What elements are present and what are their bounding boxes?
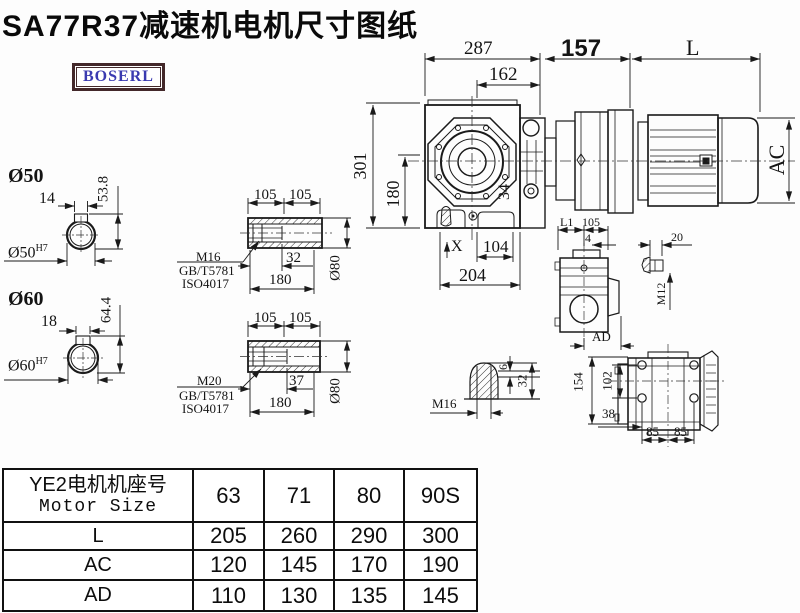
dim-foot-span: 204 (459, 266, 486, 284)
shaft-d60-label: Ø60 (8, 289, 44, 309)
plug-tip-length: 6 (497, 364, 509, 370)
hs20-bolt-depth: 37 (289, 374, 304, 389)
hs20-outer-dia: Ø80 (329, 378, 344, 404)
hs16-dim-105a: 105 (254, 188, 277, 203)
cell-ad-90s: 145 (404, 580, 477, 611)
brand-logo-text: BOSERL (76, 67, 161, 87)
cell-ad-80: 135 (334, 580, 404, 611)
hs20-dim-105b: 105 (289, 311, 312, 326)
cell-ad-71: 130 (264, 580, 334, 611)
row-label-ad: AD (3, 580, 193, 611)
dim-adapter-length: 157 (561, 37, 601, 61)
oil-plug (441, 207, 451, 227)
bolt-thread: M12 (655, 283, 667, 306)
dim-motor-diameter: AC (766, 145, 788, 176)
d60-key-width: 18 (41, 314, 57, 330)
table-col-90s: 90S (404, 469, 477, 522)
rv-bolt-pitch-a: 85 (646, 425, 659, 438)
cell-l-90s: 300 (404, 522, 477, 550)
table-col-80: 80 (334, 469, 404, 522)
plug-thread: M16 (432, 397, 457, 410)
cell-ac-63: 120 (193, 550, 264, 580)
marker-x: X (451, 239, 463, 255)
d50-key-width: 14 (39, 191, 55, 207)
shaft-d50-label: Ø50 (8, 166, 44, 186)
hs16-bolt-depth: 32 (286, 251, 301, 266)
table-col-63: 63 (193, 469, 264, 522)
cell-l-71: 260 (264, 522, 334, 550)
page-title: SA77R37减速机电机尺寸图纸 (2, 1, 418, 45)
d60-key-height: 64.4 (100, 297, 115, 323)
hs16-thread: M16 (196, 250, 221, 263)
row-label-ac: AC (3, 550, 193, 580)
cell-l-63: 205 (193, 522, 264, 550)
dim-height-axis: 180 (384, 181, 402, 208)
hs20-thread: M20 (197, 374, 222, 387)
hs20-total-length: 180 (269, 396, 292, 411)
dim-width-total: 287 (464, 39, 493, 58)
sv-dim-ad: AD (592, 330, 611, 343)
cell-ac-71: 145 (264, 550, 334, 580)
motor-size-table: YE2电机机座号 Motor Size 63 71 80 90S L 205 2… (2, 468, 478, 612)
motor-adapter (545, 110, 648, 213)
brand-logo: BOSERL (72, 63, 165, 91)
sv-dim-4: 4 (585, 232, 591, 244)
rv-offset: 38 (602, 407, 615, 420)
sv-dim-105: 105 (582, 216, 600, 228)
gearbox-front-view (425, 100, 545, 228)
sv-dim-l1: L1 (560, 216, 573, 228)
table-col-71: 71 (264, 469, 334, 522)
hs20-dim-105a: 105 (254, 311, 277, 326)
plug-length: 32 (516, 375, 529, 388)
cell-l-80: 290 (334, 522, 404, 550)
drawing-sheet: SA77R37减速机电机尺寸图纸 BOSERL 287 162 157 L 30… (0, 0, 800, 613)
motor-side-view (648, 115, 758, 206)
d50-key-height: 53.8 (97, 176, 112, 202)
main-dimensions (366, 53, 795, 290)
rv-bolt-pitch-b: 85 (674, 425, 687, 438)
table-row: L 205 260 290 300 (3, 522, 477, 550)
cell-ac-80: 170 (334, 550, 404, 580)
hs16-standard-2: ISO4017 (182, 277, 229, 290)
dim-34: 34 (497, 184, 513, 200)
table-header-motor-size: YE2电机机座号 Motor Size (3, 469, 193, 522)
dim-width-flange: 162 (489, 65, 518, 84)
dim-foot-offset: 104 (483, 238, 509, 255)
rv-bolt-spacing-v: 102 (601, 371, 614, 391)
cell-ac-90s: 190 (404, 550, 477, 580)
dim-motor-length: L (686, 37, 699, 59)
d50-bore-label: Ø50H7 (8, 244, 48, 261)
cell-ad-63: 110 (193, 580, 264, 611)
dim-height-total: 301 (351, 153, 369, 180)
rv-height-total: 154 (572, 372, 585, 392)
table-row: AD 110 130 135 145 (3, 580, 477, 611)
table-row: AC 120 145 170 190 (3, 550, 477, 580)
d60-bore-label: Ø60H7 (8, 357, 48, 374)
bolt-length: 20 (671, 231, 683, 243)
row-label-l: L (3, 522, 193, 550)
hs16-outer-dia: Ø80 (329, 255, 344, 281)
hs20-standard-2: ISO4017 (182, 402, 229, 415)
hs16-dim-105b: 105 (289, 188, 312, 203)
hs16-total-length: 180 (269, 273, 292, 288)
